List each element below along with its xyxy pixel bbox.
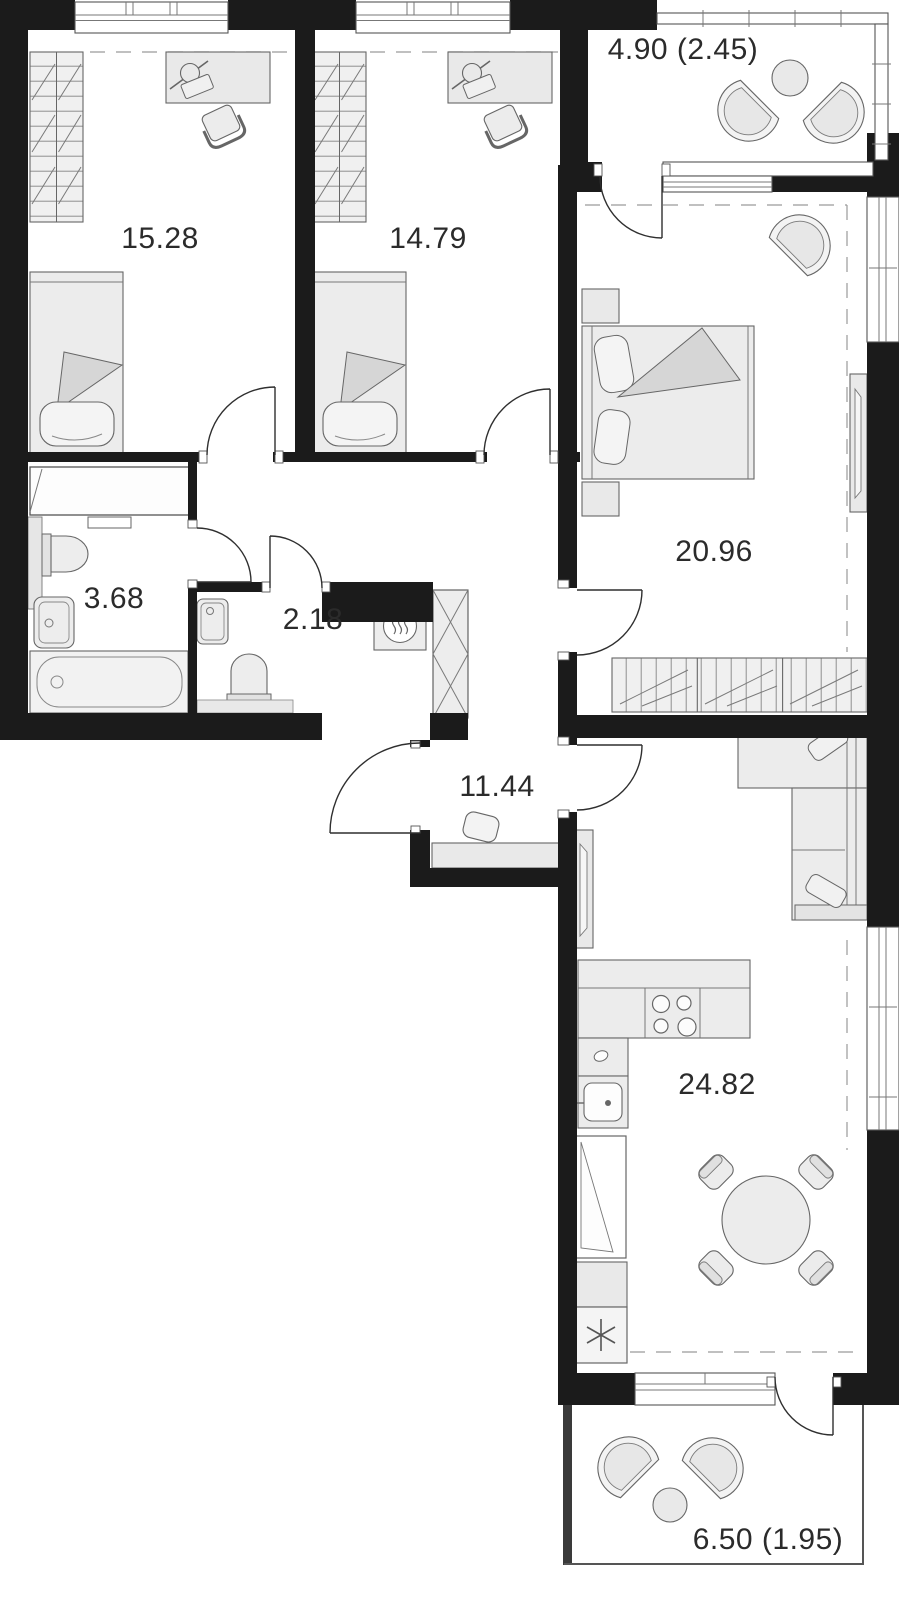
window-bedroom1: [75, 2, 228, 33]
toilet: [51, 536, 88, 572]
fan-chair: [585, 1424, 662, 1501]
fridge: [576, 1307, 627, 1363]
room-label-hallway: 11.44: [459, 770, 534, 803]
wall-box: [88, 517, 131, 528]
vent-shaft: [433, 590, 468, 718]
room-label-bedroom2: 14.79: [389, 222, 467, 255]
base-cabinet: [576, 1262, 627, 1307]
single-bed: [313, 272, 406, 455]
master-bedroom-furniture: [582, 202, 868, 712]
dining-chair: [695, 1247, 736, 1288]
armchair: [766, 202, 843, 279]
window-master-right: [867, 197, 899, 342]
wardrobe: [30, 52, 83, 222]
balcony-top-furniture: [705, 60, 877, 156]
kitchen-furniture: [575, 718, 867, 1363]
toilet: [231, 654, 267, 694]
mirror: [580, 844, 587, 936]
door-bedroom2: [484, 389, 550, 455]
single-bed: [30, 272, 123, 455]
door-entrance: [330, 743, 420, 833]
fan-chair: [679, 1425, 756, 1502]
sofa: [738, 718, 867, 920]
fan-chair: [705, 77, 782, 154]
room-label-bathroom: 3.68: [84, 582, 144, 615]
door-balcony-top: [600, 176, 662, 238]
wardrobe: [313, 52, 366, 222]
floor-step: [197, 700, 293, 713]
desk-chair: [198, 102, 247, 150]
window-kitchen-balcony: [635, 1373, 775, 1405]
round-table: [653, 1488, 687, 1522]
window-bedroom2: [356, 2, 510, 33]
fan-chair: [800, 79, 877, 156]
room-label-bedroom1: 15.28: [121, 222, 199, 255]
door-kitchen: [577, 745, 642, 810]
floor-plan-canvas: 15.28 14.79 4.90 (2.45) 20.96 3.68 2.18 …: [0, 0, 899, 1600]
room-label-master-bedroom: 20.96: [675, 535, 753, 568]
nightstand: [582, 289, 619, 323]
room-label-balcony-bottom: 6.50 (1.95): [693, 1523, 844, 1556]
stool: [461, 810, 500, 843]
dining-chair: [695, 1151, 736, 1192]
bench: [432, 843, 570, 868]
wardrobe-wide: [612, 658, 868, 712]
faucet: [605, 1100, 611, 1106]
room-labels: 15.28 14.79 4.90 (2.45) 20.96 3.68 2.18 …: [84, 33, 843, 1556]
room-label-wc: 2.18: [283, 603, 343, 636]
room-label-kitchen-living: 24.82: [678, 1068, 756, 1101]
balcony-bottom-furniture: [585, 1424, 756, 1522]
hallway-furniture: [432, 810, 570, 868]
door-wc: [270, 536, 322, 588]
cabinet-counter: [30, 467, 189, 515]
nightstand: [582, 482, 619, 516]
dining-chair: [795, 1151, 836, 1192]
desk-chair: [480, 102, 529, 150]
door-master-bedroom: [577, 590, 642, 655]
desk: [166, 52, 270, 103]
kitchen-sink: [584, 1083, 622, 1121]
door-balcony-bottom: [775, 1377, 833, 1435]
round-table: [772, 60, 808, 96]
dining-table: [722, 1176, 810, 1264]
dining-chair: [795, 1247, 836, 1288]
door-bedroom1: [207, 387, 275, 455]
window-kitchen-right: [867, 927, 899, 1130]
door-bathroom: [197, 528, 251, 582]
room-label-balcony-top: 4.90 (2.45): [608, 33, 759, 66]
floor-plan: 15.28 14.79 4.90 (2.45) 20.96 3.68 2.18 …: [0, 0, 899, 1600]
desk: [448, 52, 552, 103]
toilet-tank: [42, 534, 51, 576]
pipe-chase: [28, 517, 42, 609]
bathtub: [30, 651, 188, 713]
